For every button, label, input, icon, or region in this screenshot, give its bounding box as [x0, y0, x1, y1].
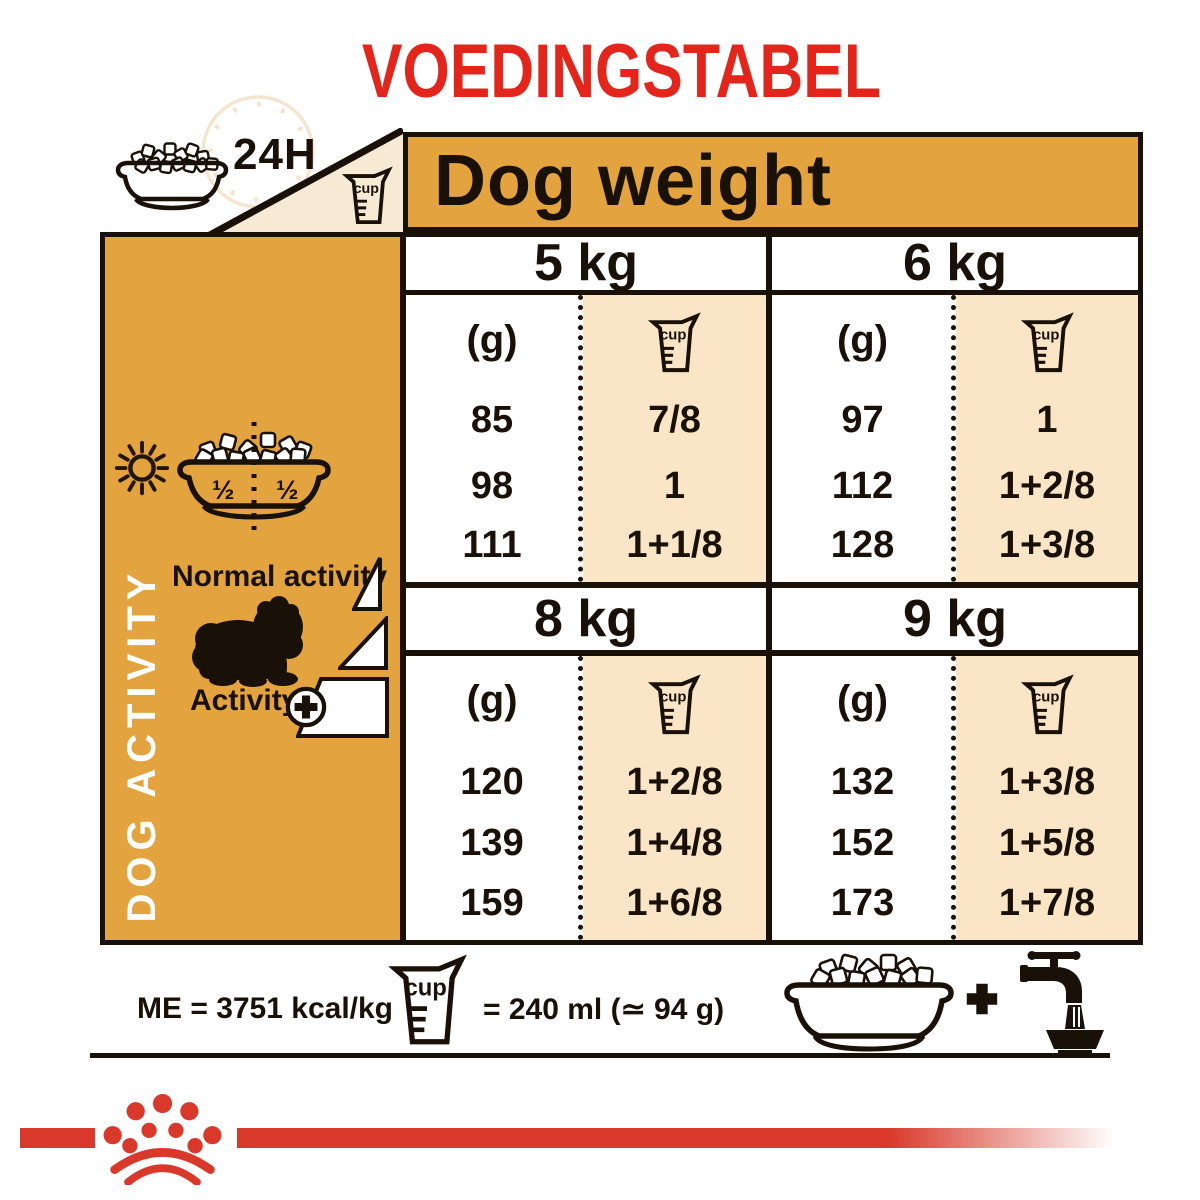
moon-icon [346, 446, 392, 496]
measuring-cup-icon: cup [1020, 673, 1074, 739]
dog-activity-vertical-label: DOG ACTIVITY [120, 535, 160, 955]
activity-label: Activity [190, 684, 298, 718]
svg-text:cup: cup [660, 690, 686, 706]
cup-value: 1+2/8 [583, 760, 766, 804]
measuring-cup-icon: cup [647, 673, 701, 739]
gram-value: 173 [772, 881, 953, 925]
cup-value: 1+4/8 [583, 821, 766, 865]
measuring-cup-icon: cup [341, 166, 393, 228]
svg-text:cup: cup [404, 974, 446, 1001]
cup-value: 1+1/8 [583, 523, 766, 567]
grid-line-h3 [406, 650, 1138, 656]
cup-value: 1 [956, 398, 1138, 442]
brand-bar-left [20, 1128, 95, 1148]
water-tap-icon [1008, 950, 1108, 1055]
cup-value: 1+7/8 [956, 881, 1138, 925]
weight-header-5kg: 5 kg [406, 237, 766, 290]
gram-value: 111 [406, 523, 578, 567]
measuring-cup-icon: cup [647, 311, 701, 377]
gram-value: 159 [406, 881, 578, 925]
svg-text:cup: cup [660, 328, 686, 344]
gram-value: 85 [406, 398, 578, 442]
gram-value: 139 [406, 821, 578, 865]
gram-value: 152 [772, 821, 953, 865]
cup-value: 1+3/8 [956, 760, 1138, 804]
cup-value: 1+5/8 [956, 821, 1138, 865]
weight-header-9kg: 9 kg [772, 588, 1138, 650]
gram-value: 120 [406, 760, 578, 804]
split-bowl-icon: ½ ½ [170, 418, 338, 540]
kibble-bowl-icon [778, 953, 960, 1053]
gram-unit-label: (g) [772, 677, 953, 723]
gram-unit-label: (g) [406, 677, 578, 723]
gram-unit-label: (g) [406, 317, 578, 363]
gram-value: 112 [772, 464, 953, 508]
plus-circle-icon [285, 686, 327, 728]
gram-unit-label: (g) [772, 317, 953, 363]
sun-icon [111, 437, 173, 499]
feeding-grid: 5 kg 6 kg 8 kg 9 kg (g) (g) cup cup 85 9… [400, 232, 1143, 945]
measuring-cup-icon: cup [1020, 311, 1074, 377]
feeding-table-page: VOEDINGSTABEL cup 24H Dog weight [0, 0, 1200, 1200]
plus-icon [963, 980, 1001, 1018]
dog-weight-header: Dog weight [403, 132, 1143, 232]
kibble-bowl-icon [111, 140, 233, 214]
me-kcal-label: ME = 3751 kcal/kg [130, 992, 400, 1026]
footer-divider [90, 1053, 1110, 1058]
cup-value: 1+3/8 [956, 523, 1138, 567]
dog-weight-label: Dog weight [408, 137, 1138, 225]
brand-bar-right [237, 1128, 1142, 1148]
cup-value: 1 [583, 464, 766, 508]
svg-text:cup: cup [1033, 690, 1059, 706]
crown-logo [100, 1093, 225, 1185]
half-portion-left: ½ [212, 475, 235, 505]
activity-level-2-triangle [338, 616, 390, 672]
gram-value: 97 [772, 398, 953, 442]
weight-header-8kg: 8 kg [406, 588, 766, 650]
cup-icon-label: cup [354, 181, 380, 197]
dog-activity-sidebar: ½ ½ DOG ACTIVITY Normal activity Activit… [100, 232, 400, 945]
half-portion-right: ½ [276, 475, 299, 505]
gram-value: 132 [772, 760, 953, 804]
cup-value: 7/8 [583, 398, 766, 442]
gram-value: 128 [772, 523, 953, 567]
gram-value: 98 [406, 464, 578, 508]
cup-equivalence-label: = 240 ml (≃ 94 g) [483, 992, 724, 1027]
weight-header-6kg: 6 kg [772, 237, 1138, 290]
svg-text:cup: cup [1033, 328, 1059, 344]
cup-value: 1+2/8 [956, 464, 1138, 508]
measuring-cup-icon: cup [383, 953, 471, 1051]
grid-line-h1 [406, 290, 1138, 295]
activity-level-1-triangle [352, 555, 384, 613]
dog-silhouette-icon [183, 595, 313, 689]
24h-label: 24H [233, 130, 317, 180]
cup-value: 1+6/8 [583, 881, 766, 925]
